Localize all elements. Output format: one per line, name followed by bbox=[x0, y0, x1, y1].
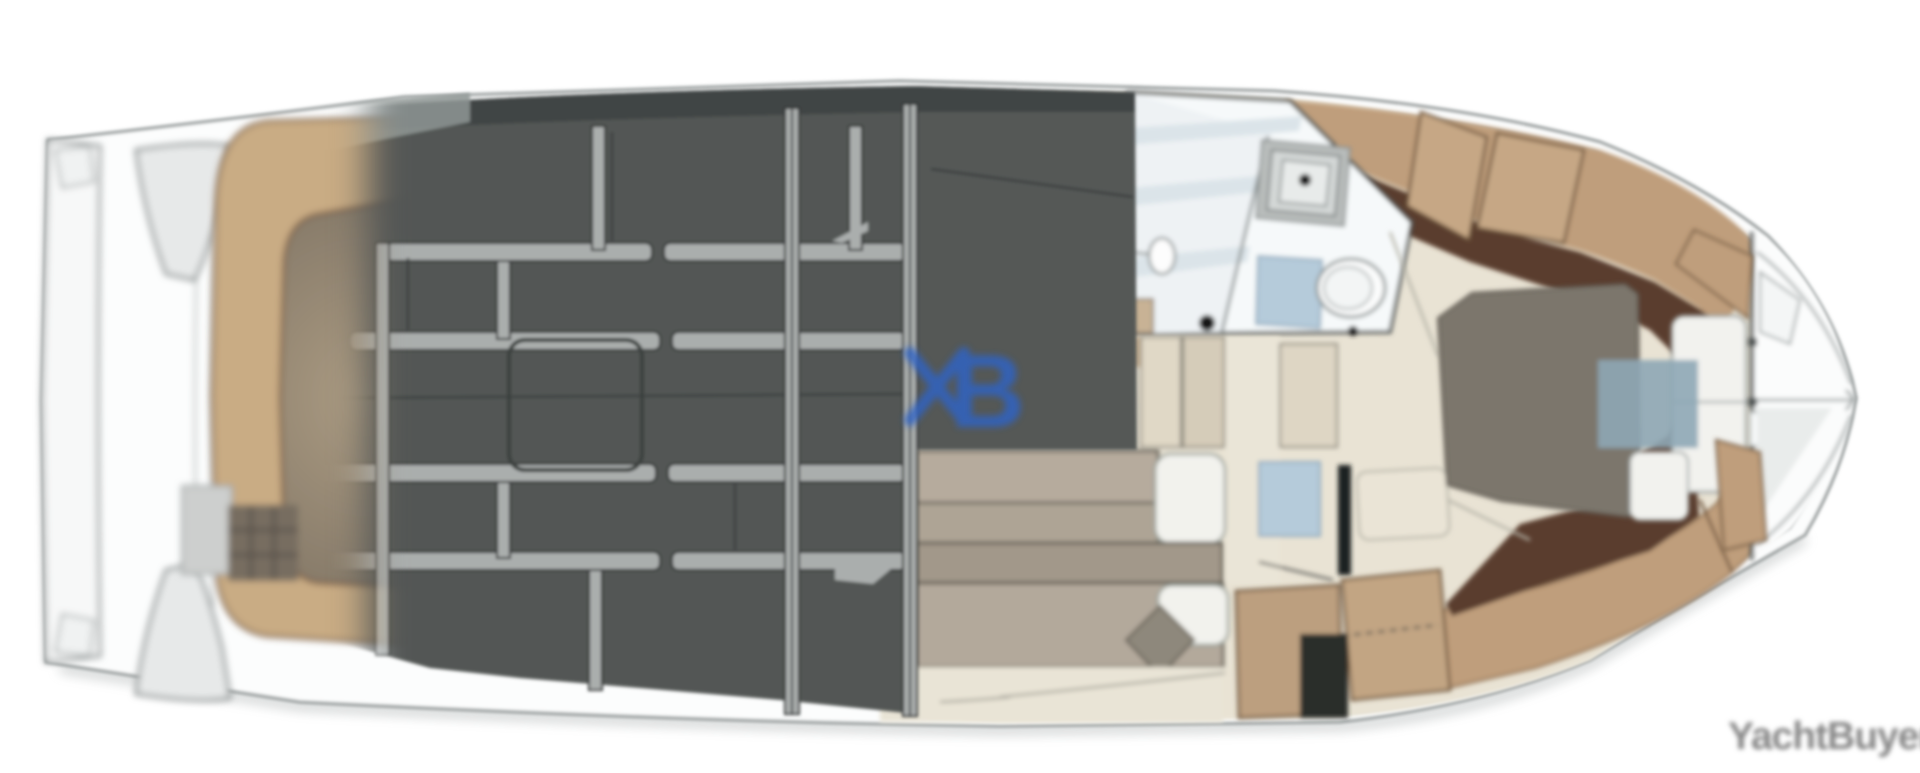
svg-text:B: B bbox=[950, 334, 1025, 450]
svg-text:YachtBuyer: YachtBuyer bbox=[1728, 715, 1920, 758]
